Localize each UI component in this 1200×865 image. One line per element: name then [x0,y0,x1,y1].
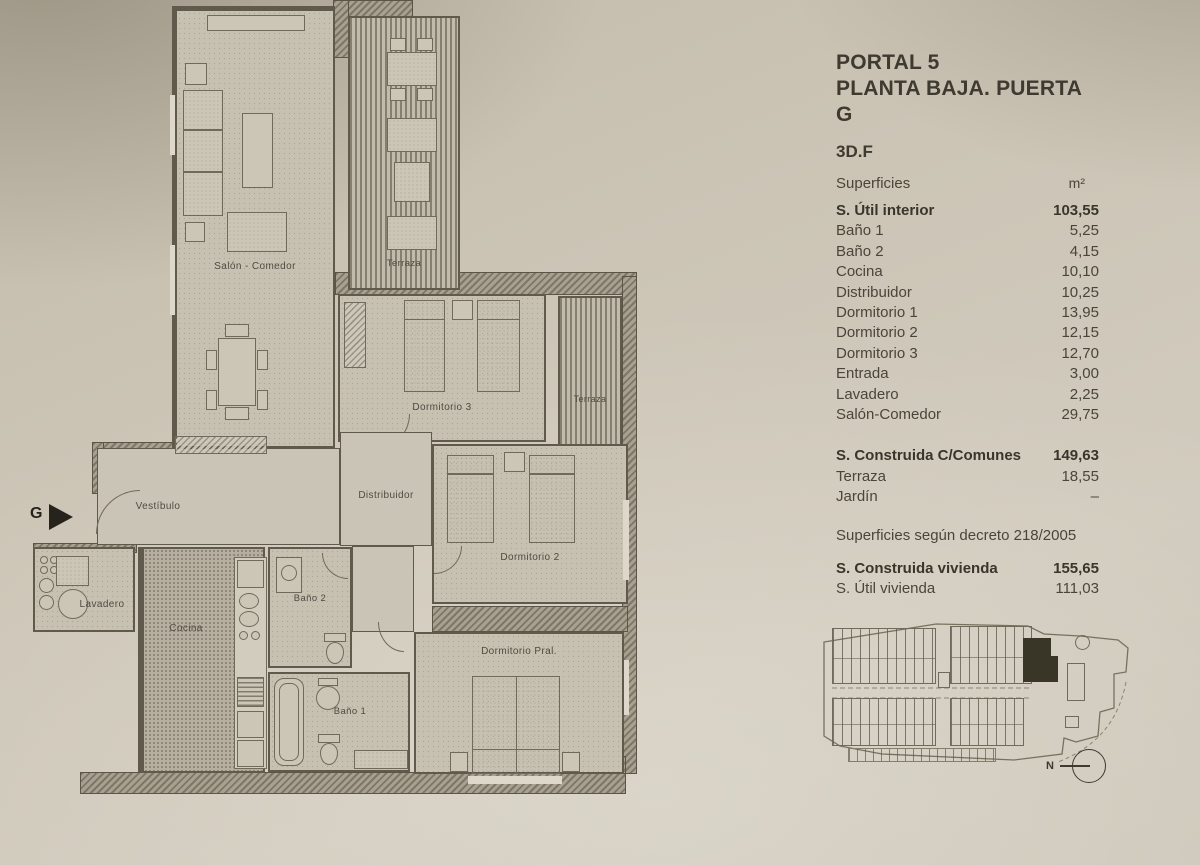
sideboard [207,15,305,31]
door-arc [378,622,404,652]
row-value: 111,03 [1055,579,1099,599]
row-value: 5,25 [1070,221,1099,241]
entrance-arrow-icon [49,504,73,530]
row-label: Cocina [836,262,883,282]
laundry-sink [39,595,54,610]
row-value: 12,15 [1061,323,1099,343]
amenity-building [1065,716,1079,728]
table-row: Baño 24,15 [836,242,1099,262]
floor-title: PLANTA BAJA. PUERTA G [836,76,1099,128]
row-label: Dormitorio 1 [836,303,918,323]
laundry-sink [39,578,54,593]
interior-surfaces-table: S. Útil interior 103,55 Baño 15,25 Baño … [836,201,1099,425]
table-row: S. Construida C/Comunes 149,63 [836,446,1099,466]
table-row: Jardín– [836,487,1099,507]
room-label: Baño 2 [270,593,350,604]
row-value: 3,00 [1070,364,1099,384]
wall [333,0,349,58]
row-value: 103,55 [1053,201,1099,221]
chair [257,390,268,410]
row-label: S. Construida C/Comunes [836,446,1021,466]
floor-plan: Salón - Comedor Terraza [0,0,700,820]
room-label: Dormitorio 2 [434,552,626,563]
window [468,776,562,784]
kitchen-cabinet [237,740,264,767]
kitchen-cabinet [237,711,264,738]
row-label: S. Construida vivienda [836,559,998,579]
row-label: Dormitorio 3 [836,344,918,364]
room-label: Terraza [350,258,458,269]
table-row: Lavadero2,25 [836,385,1099,405]
bathtub [274,678,304,766]
kitchen-fixture [239,631,248,640]
bed [477,300,520,392]
kitchen-sink [239,593,259,609]
surface-panel: PORTAL 5 PLANTA BAJA. PUERTA G 3D.F Supe… [836,50,1099,600]
housing-row [832,628,936,684]
row-value: 155,65 [1053,559,1099,579]
vanity [354,750,408,769]
sofa [183,130,223,172]
bed [447,455,494,543]
north-label: N [1046,760,1054,772]
unit-label: m² [1069,175,1085,192]
room-lavadero: Lavadero [33,547,135,632]
toilet [318,734,340,743]
row-label: S. Útil vivienda [836,579,935,599]
bed [404,300,445,392]
table-row: Terraza18,55 [836,467,1099,487]
table-row: Cocina10,10 [836,262,1099,282]
room-label: Cocina [144,623,228,634]
room-distribuidor: Distribuidor [340,432,432,546]
entrance-letter: G [30,505,42,523]
row-label: Entrada [836,364,889,384]
scanned-floorplan-sheet: Salón - Comedor Terraza [0,0,1200,865]
row-value: 149,63 [1053,446,1099,466]
row-label: Lavadero [836,385,899,405]
pool [1075,635,1090,650]
wardrobe [344,302,366,368]
chair [225,324,249,337]
parking-strip [848,748,996,762]
housing-row [832,698,936,746]
toilet [320,743,338,765]
row-value: 12,70 [1061,344,1099,364]
kitchen-fixture [251,631,260,640]
room-cocina: Cocina [138,547,265,773]
table-row: Dormitorio 212,15 [836,323,1099,343]
window [623,500,629,580]
table-row: Entrada3,00 [836,364,1099,384]
hall-passage [352,546,414,632]
row-value: 18,55 [1061,467,1099,487]
room-terraza-top: Terraza [348,16,460,290]
toilet [326,642,344,664]
nightstand [562,752,580,772]
row-label: Baño 1 [836,221,884,241]
table-row: Baño 15,25 [836,221,1099,241]
room-label: Baño 1 [300,706,400,717]
unit-type: 3D.F [836,142,1099,162]
amenity-building [1067,663,1085,701]
chair [390,38,406,51]
table-row: Dormitorio 113,95 [836,303,1099,323]
sofa [183,90,223,130]
room-salon-comedor: Salón - Comedor [172,6,335,448]
side-table [185,222,205,242]
table-row: Salón-Comedor29,75 [836,405,1099,425]
compass-circle [1072,749,1106,783]
row-label: Terraza [836,467,886,487]
nightstand [452,300,473,320]
toilet [324,633,346,642]
bed [529,455,575,543]
room-bano-1: Baño 1 [268,672,410,772]
room-label: Dormitorio 3 [340,402,544,413]
lounger [387,118,437,152]
table-row: Distribuidor10,25 [836,283,1099,303]
window [170,95,175,155]
room-label: Lavadero [57,599,147,610]
table-row: Dormitorio 312,70 [836,344,1099,364]
table-row: S. Útil interior 103,55 [836,201,1099,221]
row-value: 13,95 [1061,303,1099,323]
utility-fixture [40,556,48,564]
site-plan: N [818,612,1170,797]
washing-machine [56,556,89,586]
row-label: Distribuidor [836,283,912,303]
row-value: 4,15 [1070,242,1099,262]
lounger [394,162,430,202]
table-row: S. Construida vivienda155,65 [836,559,1099,579]
room-label: Dormitorio Pral. [416,646,622,657]
chair [206,350,217,370]
construida-surfaces-table: S. Construida C/Comunes 149,63 Terraza18… [836,446,1099,507]
room-label: Distribuidor [341,490,431,501]
row-label: Jardín [836,487,878,507]
vivienda-surfaces-table: S. Construida vivienda155,65 S. Útil viv… [836,559,1099,600]
housing-row [950,698,1024,746]
double-bed [472,676,560,774]
kitchen-sink [239,611,259,627]
hob [237,677,264,707]
stair-core [938,672,950,688]
utility-fixture [40,566,48,574]
row-value: 10,10 [1061,262,1099,282]
row-label: S. Útil interior [836,201,934,221]
bathroom-sink-bowl [281,565,297,581]
row-value: – [1091,487,1099,507]
row-value: 10,25 [1061,283,1099,303]
room-label: Terraza [560,394,620,404]
row-label: Baño 2 [836,242,884,262]
row-label: Dormitorio 2 [836,323,918,343]
wall [432,606,628,632]
row-value: 2,25 [1070,385,1099,405]
loveseat [227,212,287,252]
room-label: Salón - Comedor [177,261,333,272]
room-dormitorio-3: Dormitorio 3 [338,294,546,442]
surfaces-label: Superficies [836,175,910,192]
room-dormitorio-2: Dormitorio 2 [432,444,628,604]
room-dormitorio-pral: Dormitorio Pral. [414,632,624,774]
bathroom-sink [318,678,338,686]
housing-row [950,626,1032,684]
nightstand [450,752,468,772]
entry-closet [175,436,267,454]
chair [390,88,406,101]
row-value: 29,75 [1061,405,1099,425]
chair [257,350,268,370]
side-table [185,63,207,85]
coffee-table [242,113,273,188]
terrace-table [387,52,437,86]
sofa [183,172,223,216]
chair [206,390,217,410]
chair [417,88,433,101]
lounger [387,216,437,250]
row-label: Salón-Comedor [836,405,941,425]
nightstand [504,452,525,472]
table-row: S. Útil vivienda111,03 [836,579,1099,599]
window [170,245,175,315]
chair [225,407,249,420]
decree-note: Superficies según decreto 218/2005 [836,527,1099,544]
highlighted-unit [1040,656,1058,682]
chair [417,38,433,51]
kitchen-cabinet [237,560,264,588]
room-terraza-right: Terraza [558,296,622,452]
dining-table [218,338,256,406]
portal-title: PORTAL 5 [836,50,1099,76]
